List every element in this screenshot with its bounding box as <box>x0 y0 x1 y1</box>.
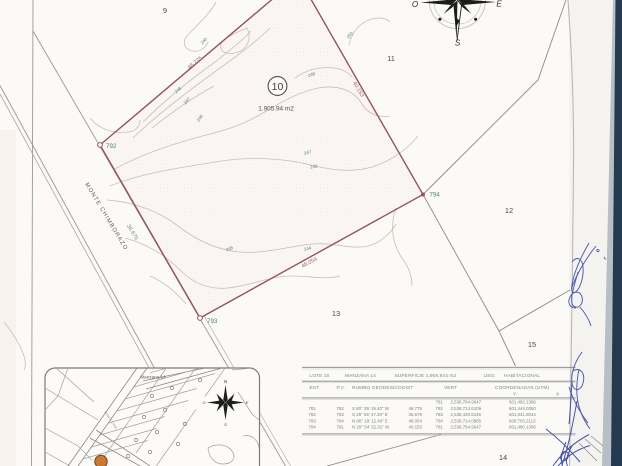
svg-text:36.679: 36.679 <box>409 412 423 417</box>
svg-text:12: 12 <box>505 206 513 215</box>
svg-text:792: 792 <box>106 143 117 150</box>
svg-text:RUMBO GEODESICO: RUMBO GEODESICO <box>352 385 402 391</box>
svg-text:9: 9 <box>163 6 167 15</box>
svg-text:LOTE 10: LOTE 10 <box>310 373 330 379</box>
svg-text:601,444.0350: 601,444.0350 <box>509 406 536 411</box>
svg-text:S: S <box>224 422 227 427</box>
svg-text:14: 14 <box>499 453 507 462</box>
svg-text:48.054: 48.054 <box>409 418 423 423</box>
svg-text:784: 784 <box>337 418 345 423</box>
svg-text:781: 781 <box>436 400 444 405</box>
svg-text:600,703.2113: 600,703.2113 <box>509 418 536 423</box>
svg-text:793: 793 <box>207 318 218 325</box>
svg-text:USO:: USO: <box>484 373 496 379</box>
svg-text:781: 781 <box>436 425 444 430</box>
svg-text:S 29° 55' 47.30" E: S 29° 55' 47.30" E <box>352 412 388 417</box>
svg-text:783: 783 <box>309 418 317 423</box>
svg-text:10: 10 <box>272 81 284 93</box>
svg-text:2,538,714.6109: 2,538,714.6109 <box>451 406 482 411</box>
svg-text:781: 781 <box>309 406 317 411</box>
svg-text:VERT: VERT <box>444 385 457 391</box>
svg-text:2,538,764.9647: 2,538,764.9647 <box>451 400 482 405</box>
svg-text:11: 11 <box>387 54 395 63</box>
svg-text:S 80° 35' 19.40" W: S 80° 35' 19.40" W <box>352 406 390 411</box>
svg-text:794: 794 <box>430 192 441 199</box>
svg-text:2,538,430.6146: 2,538,430.6146 <box>451 412 482 417</box>
svg-text:13: 13 <box>332 309 340 318</box>
svg-text:N 29° 54' 52.31" W: N 29° 54' 52.31" W <box>352 425 390 430</box>
svg-text:Manzana 14: Manzana 14 <box>140 375 166 380</box>
svg-text:MANZANA 14: MANZANA 14 <box>345 373 376 379</box>
svg-text:782: 782 <box>436 406 444 411</box>
svg-text:2,538,714.0985: 2,538,714.0985 <box>451 418 482 423</box>
svg-text:O: O <box>412 0 418 9</box>
svg-text:S: S <box>455 39 461 48</box>
svg-text:E: E <box>496 0 502 9</box>
svg-text:601,480.1366: 601,480.1366 <box>509 425 536 430</box>
svg-text:COORDENADAS (UTM): COORDENADAS (UTM) <box>495 385 550 391</box>
svg-text:15: 15 <box>528 340 536 349</box>
svg-text:DIST: DIST <box>402 385 413 391</box>
svg-text:P.V.: P.V. <box>337 385 345 391</box>
svg-text:784: 784 <box>309 425 317 430</box>
svg-text:N 86° 18' 12.40" E: N 86° 18' 12.40" E <box>352 418 388 423</box>
svg-text:601,941.8044: 601,941.8044 <box>509 412 536 417</box>
svg-text:2,538,754.9647: 2,538,754.9647 <box>451 425 482 430</box>
svg-text:E: E <box>246 400 249 405</box>
svg-text:SUPERFICIE 1,905.944 m2: SUPERFICIE 1,905.944 m2 <box>395 373 457 379</box>
svg-text:782: 782 <box>309 412 317 417</box>
svg-text:783: 783 <box>436 412 444 417</box>
svg-text:46.775: 46.775 <box>409 406 423 411</box>
svg-text:781: 781 <box>337 425 345 430</box>
svg-text:783: 783 <box>337 412 345 417</box>
svg-text:601,482.1366: 601,482.1366 <box>509 400 536 405</box>
svg-text:784: 784 <box>436 418 444 423</box>
svg-text:40.153: 40.153 <box>409 425 423 430</box>
svg-text:782: 782 <box>337 406 345 411</box>
svg-text:HABITACIONAL: HABITACIONAL <box>504 373 540 379</box>
svg-text:EST: EST <box>310 385 320 391</box>
svg-text:O: O <box>202 400 205 405</box>
svg-text:1.905.94 m2: 1.905.94 m2 <box>258 106 294 113</box>
